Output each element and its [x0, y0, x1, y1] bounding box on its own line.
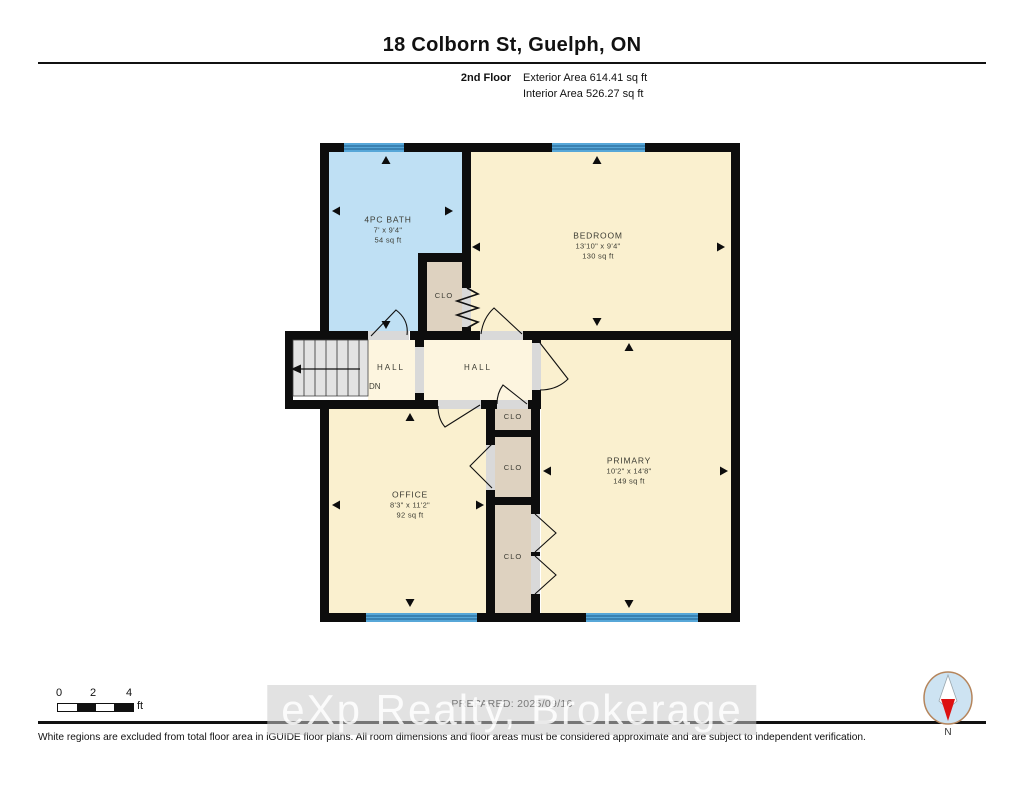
primary-name: PRIMARY [606, 456, 651, 467]
room-label-closet-c: CLO [504, 552, 522, 562]
room-label-hall2: HALL [464, 363, 492, 373]
bath-area: 54 sq ft [364, 236, 411, 246]
bedroom-dimensions: 13'10" x 9'4" [573, 242, 623, 252]
primary-area: 149 sq ft [606, 477, 651, 487]
floor-plan-page: 18 Colborn St, Guelph, ON 2nd Floor Exte… [0, 0, 1024, 791]
room-label-bath: 4PC BATH 7' x 9'4" 54 sq ft [364, 215, 411, 246]
window-bedroom [552, 143, 645, 152]
bedroom-name: BEDROOM [573, 231, 623, 242]
compass-icon: N [919, 668, 977, 738]
brokerage-watermark: eXp Realty, Brokerage [267, 685, 756, 735]
stairs-down-label: DN [369, 382, 381, 391]
office-name: OFFICE [390, 490, 430, 501]
window-office [366, 613, 477, 622]
room-label-bedroom: BEDROOM 13'10" x 9'4" 130 sq ft [573, 231, 623, 262]
floor-plan-drawing [0, 0, 1024, 791]
compass-north-label: N [944, 727, 951, 738]
office-area: 92 sq ft [390, 511, 430, 521]
room-label-closet-b: CLO [504, 463, 522, 473]
room-label-closet-a: CLO [504, 412, 522, 422]
bath-dimensions: 7' x 9'4" [364, 226, 411, 236]
bedroom-area: 130 sq ft [573, 252, 623, 262]
room-label-office: OFFICE 8'3" x 11'2" 92 sq ft [390, 490, 430, 521]
stairs [291, 340, 368, 396]
bath-name: 4PC BATH [364, 215, 411, 226]
room-label-primary: PRIMARY 10'2" x 14'8" 149 sq ft [606, 456, 651, 487]
room-label-bedroom-closet: CLO [435, 291, 453, 301]
window-primary [586, 613, 698, 622]
room-label-hall1: HALL [377, 363, 405, 373]
window-bath [344, 143, 404, 152]
primary-dimensions: 10'2" x 14'8" [606, 467, 651, 477]
office-dimensions: 8'3" x 11'2" [390, 501, 430, 511]
